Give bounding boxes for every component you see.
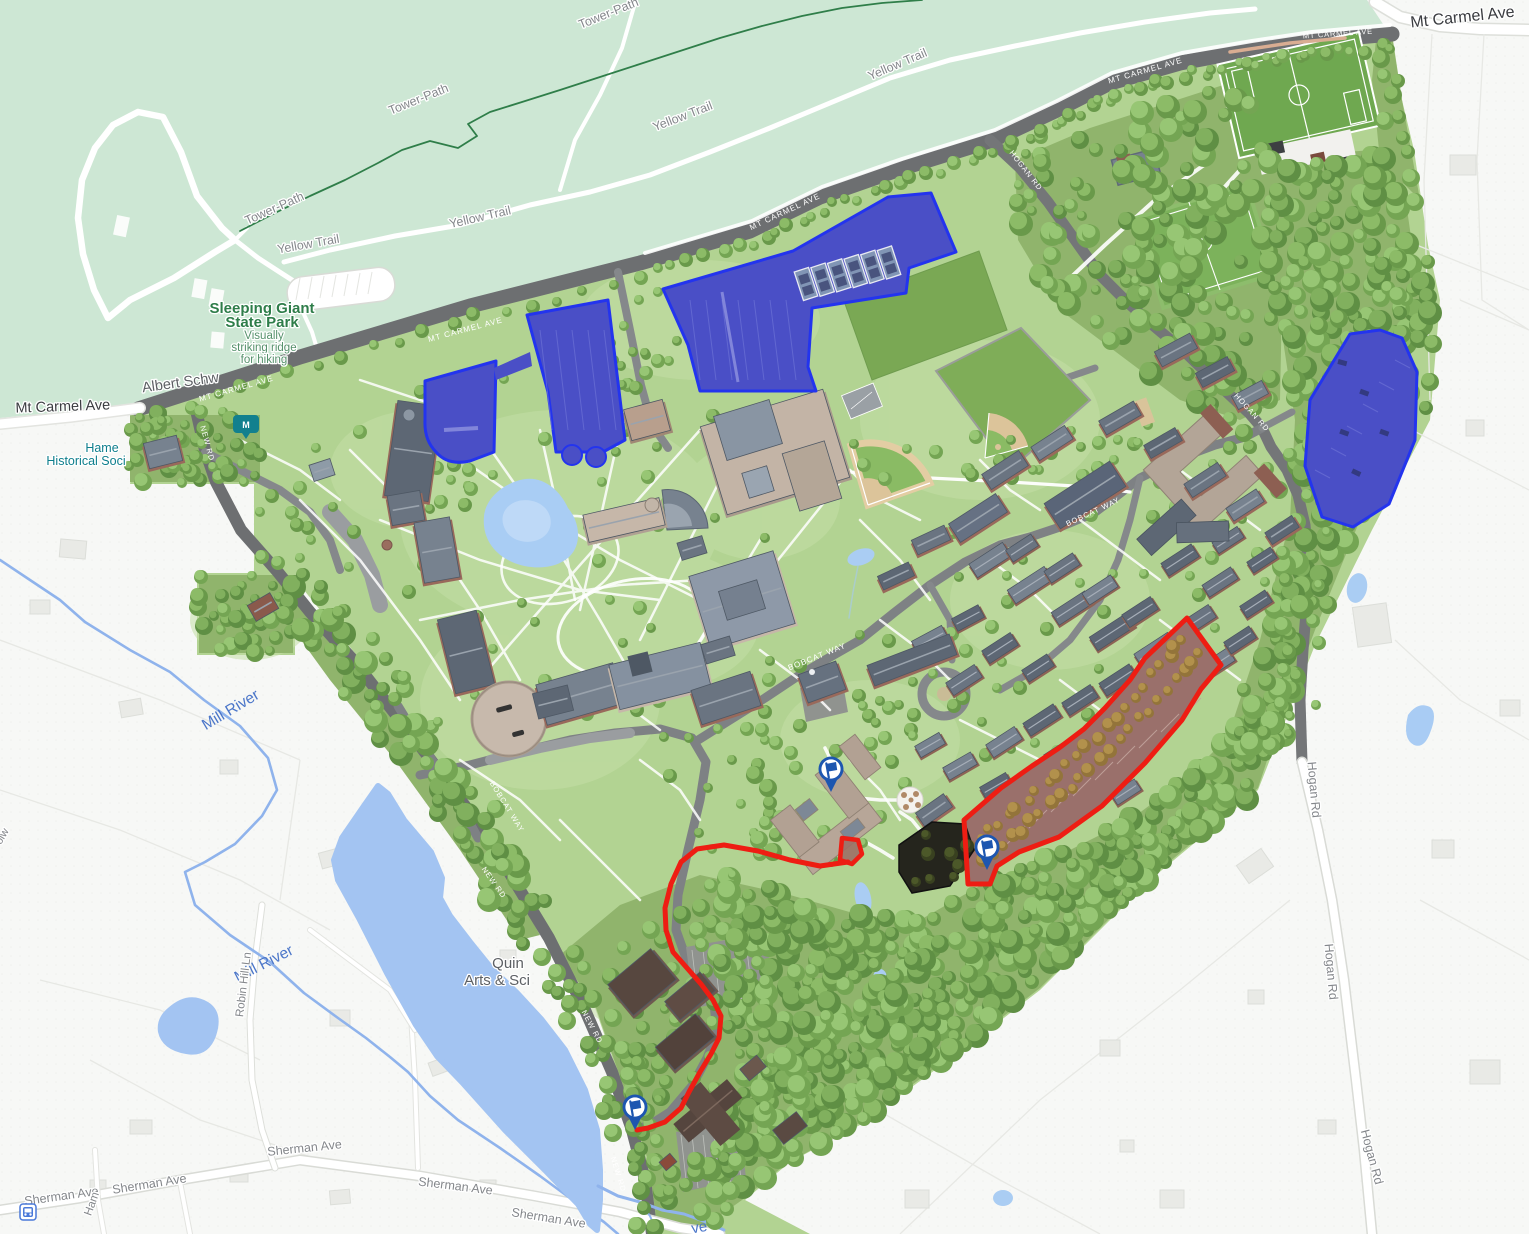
- svg-text:ve: ve: [690, 1218, 709, 1234]
- svg-text:M: M: [242, 420, 250, 430]
- svg-text:Visually: Visually: [244, 330, 284, 342]
- svg-text:State Park: State Park: [225, 314, 299, 331]
- svg-text:Mt Carmel Ave: Mt Carmel Ave: [15, 397, 110, 416]
- svg-text:Historical Soci: Historical Soci: [46, 454, 125, 468]
- svg-text:Quin: Quin: [492, 955, 524, 972]
- svg-text:for hiking: for hiking: [241, 354, 288, 366]
- svg-text:striking ridge: striking ridge: [231, 342, 296, 354]
- svg-text:Arts & Sci: Arts & Sci: [464, 972, 530, 989]
- svg-text:Hame: Hame: [85, 441, 118, 455]
